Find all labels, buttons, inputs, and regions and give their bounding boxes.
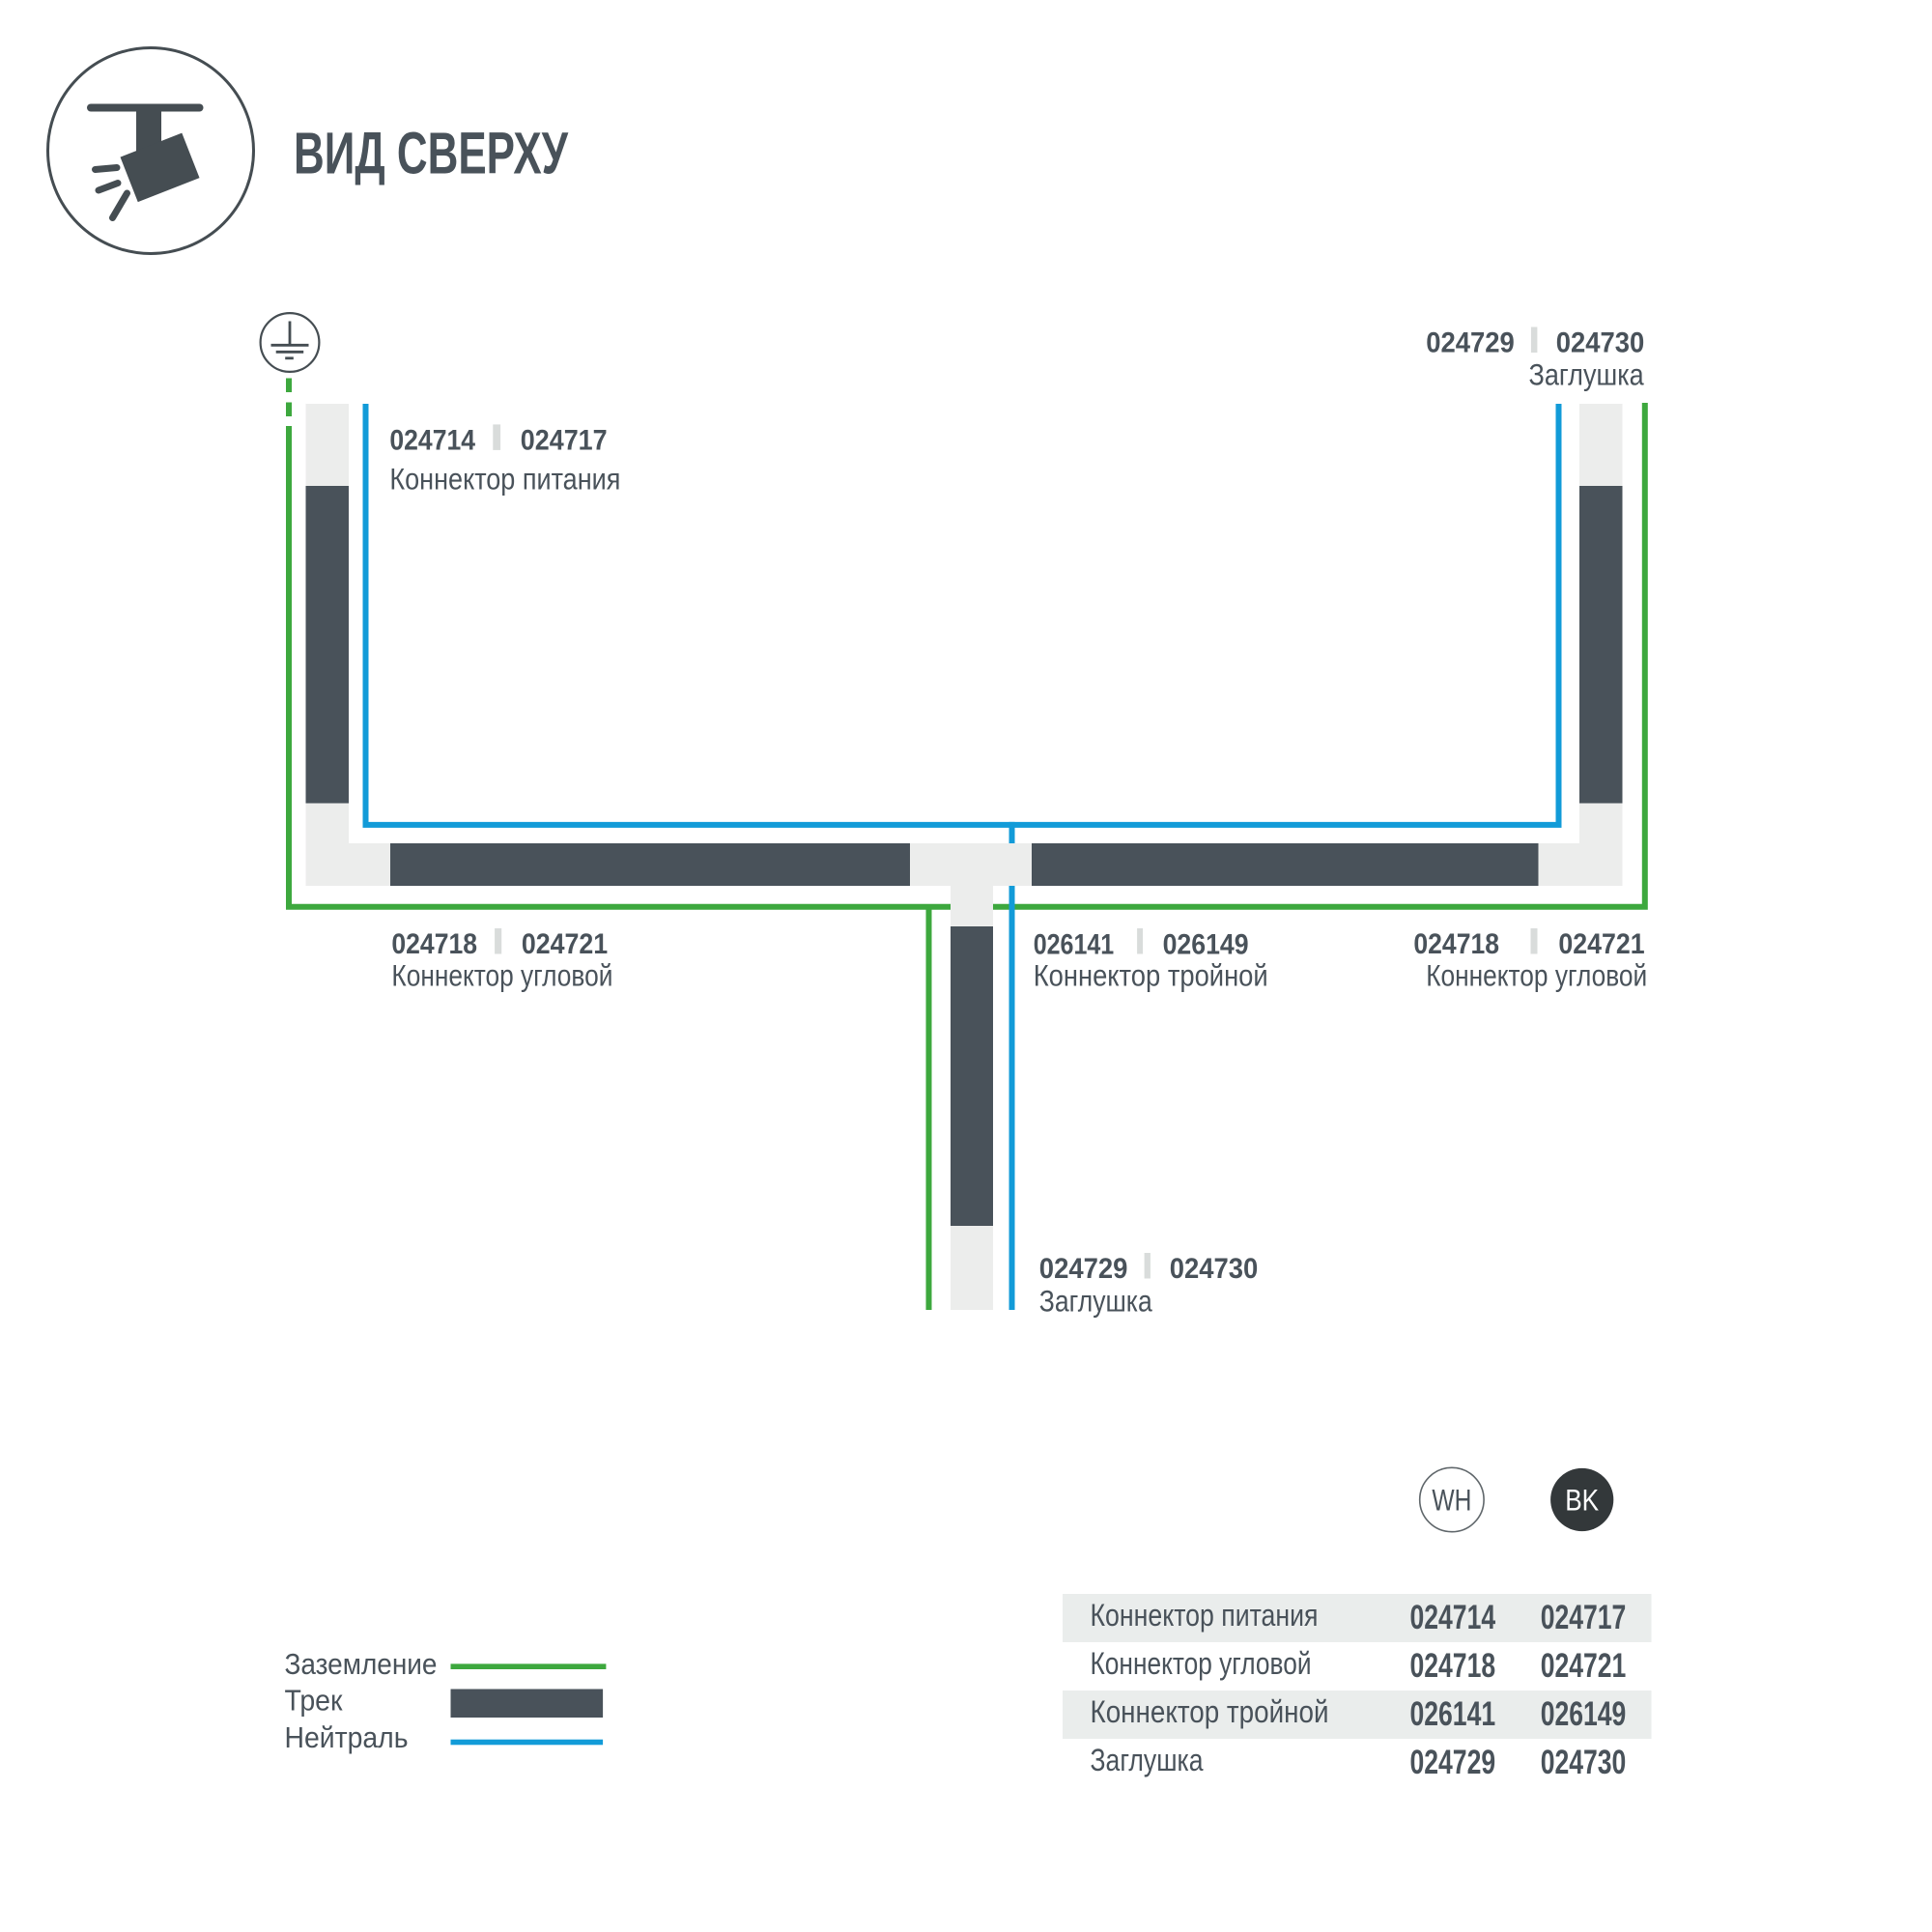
svg-text:026149: 026149: [1541, 1695, 1627, 1733]
svg-text:024721: 024721: [522, 928, 608, 960]
svg-text:024730: 024730: [1556, 327, 1645, 358]
svg-text:Заглушка: Заглушка: [1039, 1284, 1152, 1319]
svg-text:024729: 024729: [1410, 1744, 1496, 1781]
svg-text:Коннектор тройной: Коннектор тройной: [1091, 1694, 1329, 1729]
svg-text:024721: 024721: [1541, 1647, 1627, 1685]
svg-text:Заглушка: Заглушка: [1529, 357, 1645, 392]
svg-text:024718: 024718: [1410, 1647, 1496, 1685]
svg-text:Коннектор угловой: Коннектор угловой: [1426, 957, 1647, 992]
svg-text:Заземление: Заземление: [285, 1648, 438, 1681]
svg-text:Коннектор питания: Коннектор питания: [1091, 1598, 1319, 1633]
svg-text:026141: 026141: [1034, 929, 1115, 961]
svg-text:Коннектор питания: Коннектор питания: [389, 462, 620, 497]
svg-text:026141: 026141: [1410, 1695, 1496, 1733]
svg-text:024718: 024718: [391, 928, 477, 960]
svg-text:024714: 024714: [389, 424, 475, 456]
svg-text:024717: 024717: [1541, 1599, 1627, 1636]
svg-text:Трек: Трек: [285, 1685, 344, 1718]
svg-text:024729: 024729: [1039, 1253, 1128, 1285]
svg-text:WH: WH: [1432, 1482, 1471, 1517]
svg-text:ВИД СВЕРХУ: ВИД СВЕРХУ: [294, 121, 569, 187]
svg-text:024730: 024730: [1170, 1253, 1259, 1285]
svg-text:024729: 024729: [1426, 327, 1515, 358]
svg-text:Коннектор угловой: Коннектор угловой: [391, 957, 612, 992]
svg-text:026149: 026149: [1163, 929, 1249, 961]
svg-text:Заглушка: Заглушка: [1091, 1743, 1204, 1777]
svg-text:024717: 024717: [521, 424, 608, 456]
svg-text:BK: BK: [1565, 1482, 1599, 1517]
svg-text:024718: 024718: [1413, 928, 1499, 960]
svg-text:024730: 024730: [1541, 1744, 1627, 1781]
svg-text:024721: 024721: [1558, 928, 1644, 960]
svg-text:024714: 024714: [1410, 1599, 1496, 1636]
svg-text:Нейтраль: Нейтраль: [285, 1721, 409, 1754]
svg-text:Коннектор тройной: Коннектор тройной: [1034, 958, 1268, 993]
svg-text:Коннектор угловой: Коннектор угловой: [1091, 1646, 1312, 1681]
